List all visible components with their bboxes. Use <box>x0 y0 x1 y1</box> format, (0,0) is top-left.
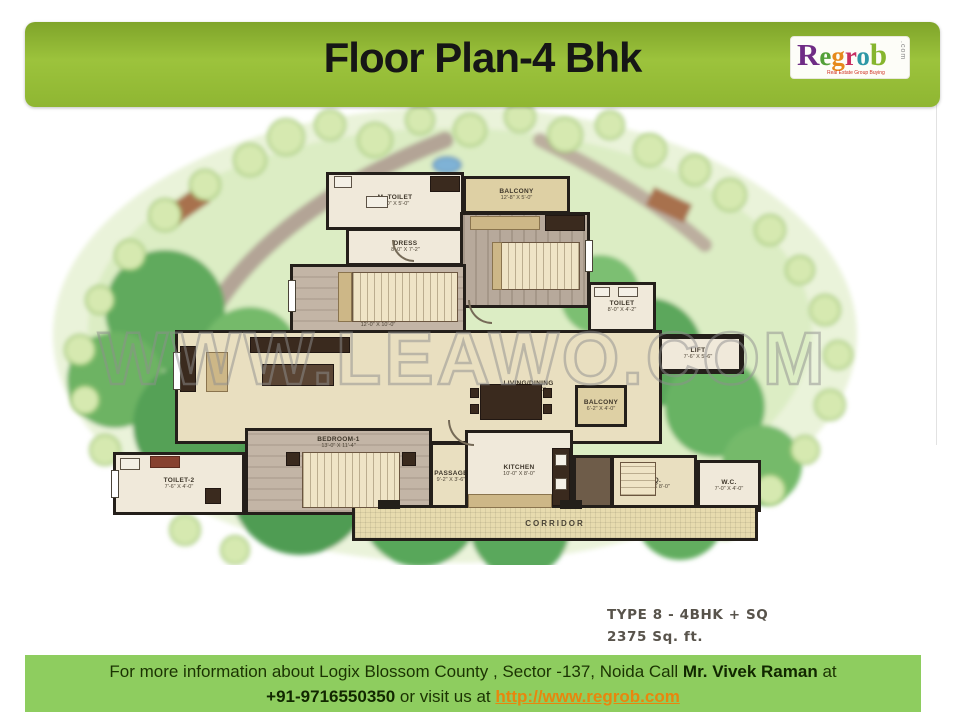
room-label: KITCHEN <box>504 464 535 471</box>
toilet-sink-fixture <box>366 196 388 208</box>
entrance-mark <box>378 500 400 509</box>
bedroom2-headboard <box>338 272 352 322</box>
room-balcony-top: BALCONY 12'-8" X 5'-0" <box>463 176 570 214</box>
midtoilet-wc-fixture <box>594 287 610 297</box>
master-wardrobe-furniture <box>545 215 585 231</box>
room-dims: 7'-0" X 4'-0" <box>715 486 744 493</box>
master-bed-headboard <box>492 242 502 290</box>
sq-bed-furniture <box>620 462 656 496</box>
room-dims: 10'-0" X 8'-0" <box>503 471 535 478</box>
regrob-link[interactable]: http://www.regrob.com <box>495 687 679 706</box>
bedroom2-bed-furniture <box>352 272 458 322</box>
contact-phone: +91-9716550350 <box>266 687 395 706</box>
footer-text: For more information about Logix Blossom… <box>109 662 683 681</box>
toilet-wc-fixture <box>334 176 352 188</box>
dining-chair <box>470 404 479 414</box>
room-dims: 6'-2" X 4'-0" <box>587 406 616 413</box>
page-background: { "header": { "title": "Floor Plan-4 Bhk… <box>0 0 960 720</box>
room-label: CORRIDOR <box>525 520 585 527</box>
regrob-com-label: .com <box>899 41 906 60</box>
regrob-tagline: Real Estate Group Buying <box>827 70 885 76</box>
window <box>585 240 593 272</box>
room-label: TOILET <box>610 300 635 307</box>
type-label: TYPE 8 - 4BHK + SQ <box>607 604 768 626</box>
toilet2-unit <box>205 488 221 504</box>
footer-bar: For more information about Logix Blossom… <box>25 655 921 712</box>
room-label: BEDROOM-1 <box>317 436 359 443</box>
room-corridor: CORRIDOR <box>352 505 758 541</box>
room-label: PASSAGE <box>434 470 467 477</box>
contact-name: Mr. Vivek Raman <box>683 662 818 681</box>
room-dims: 7'-6" X 4'-0" <box>165 484 194 491</box>
room-dims: 12'-8" X 5'-0" <box>501 195 533 202</box>
room-dims: 8'-0" X 4'-2" <box>608 307 637 314</box>
plan-caption: TYPE 8 - 4BHK + SQ 2375 Sq. ft. <box>607 604 768 648</box>
footer-text: or visit us at <box>395 687 495 706</box>
watermark: WWW.LEAWO.COM <box>98 316 828 401</box>
kitchen-sink <box>555 454 567 466</box>
master-bench-furniture <box>470 216 540 230</box>
room-label: TOILET-2 <box>164 477 195 484</box>
footer-line1: For more information about Logix Blossom… <box>25 659 921 684</box>
header-bar: Floor Plan-4 Bhk Regrob .com Real Estate… <box>25 22 940 107</box>
kitchen-stove <box>555 478 567 490</box>
window <box>288 280 296 312</box>
area-label: 2375 Sq. ft. <box>607 626 768 648</box>
kitchen-lower-counter <box>468 494 552 508</box>
bedroom1-side-table <box>402 452 416 466</box>
regrob-logo: Regrob .com Real Estate Group Buying <box>790 36 910 79</box>
window <box>111 470 119 498</box>
toilet-shower-unit <box>430 176 460 192</box>
toilet2-wc-fixture <box>120 458 140 470</box>
regrob-logo-letters: Regrob <box>797 38 887 73</box>
footer-line2: +91-9716550350 or visit us at http://www… <box>25 684 921 709</box>
dining-chair <box>543 404 552 414</box>
entrance-mark <box>560 500 582 509</box>
room-dims: 13'-0" X 11'-4" <box>321 443 355 450</box>
bedroom1-side-table <box>286 452 300 466</box>
room-label: W.C. <box>721 479 736 486</box>
room-label: BALCONY <box>499 188 533 195</box>
toilet2-counter <box>150 456 180 468</box>
master-bed-furniture <box>500 242 580 290</box>
footer-text: at <box>818 662 837 681</box>
room-dims: 9'-2" X 3'-6" <box>437 477 466 484</box>
midtoilet-sink-fixture <box>618 287 638 297</box>
